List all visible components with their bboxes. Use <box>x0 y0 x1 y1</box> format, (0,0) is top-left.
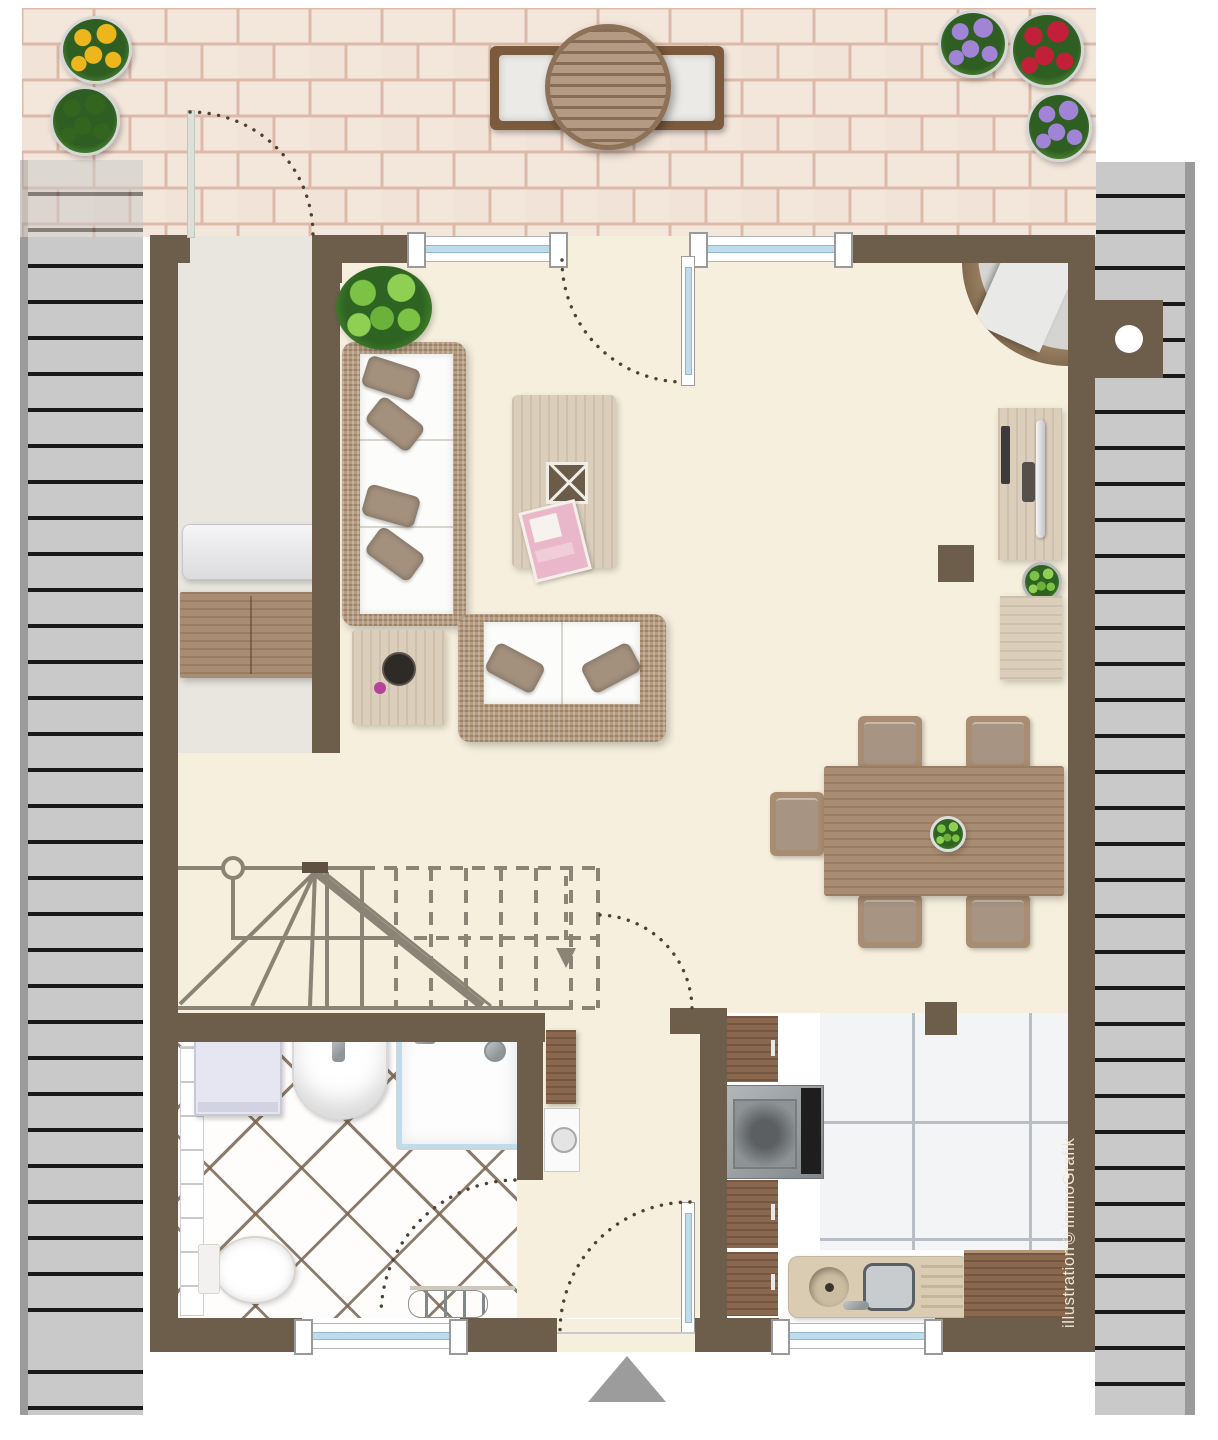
window-jamb <box>549 232 568 268</box>
washing-machine-panel <box>198 1102 278 1112</box>
flower-pot-shrub <box>50 86 120 156</box>
kitchen-cabinet <box>724 1252 778 1316</box>
wall-bottom <box>460 1318 557 1352</box>
bathroom-window <box>302 1323 460 1349</box>
desk-cabinet <box>1000 596 1062 680</box>
magazine-cover <box>529 513 562 543</box>
chimney-flue <box>1115 325 1143 353</box>
window-jamb <box>924 1319 943 1355</box>
shower-glass <box>398 1144 518 1148</box>
dining-chair <box>858 716 922 770</box>
window-jamb <box>834 232 853 268</box>
wall-pillar <box>312 235 342 283</box>
coffee-table <box>512 395 616 568</box>
wall-left <box>150 235 178 1352</box>
terrace-window-left <box>415 236 560 262</box>
kitchen-cabinet <box>724 1016 778 1082</box>
monitor-stand <box>1022 462 1035 502</box>
terrace-window-right <box>697 236 845 262</box>
window-jamb <box>407 232 426 268</box>
window-glass <box>782 1332 932 1340</box>
roof-overhang-left <box>20 237 143 1415</box>
wall-post <box>938 545 974 582</box>
window-glass <box>305 1332 457 1340</box>
kitchen-pillar <box>925 1002 957 1035</box>
roof-overhang-left-veiled <box>20 160 143 237</box>
window-glass <box>418 245 557 253</box>
kitchen-sink <box>788 1256 970 1318</box>
stove-oven <box>733 1099 797 1169</box>
wall-bottom <box>150 1318 302 1352</box>
sideboard <box>180 592 320 678</box>
terrace-door-leaf <box>681 256 695 386</box>
hall-appliance <box>544 1108 580 1172</box>
monitor <box>1036 420 1045 538</box>
kitchen-faucet <box>843 1301 869 1310</box>
wall-bathroom-top <box>178 1013 545 1042</box>
shower-glass <box>398 1030 402 1148</box>
keyboard <box>1001 426 1010 484</box>
floorplan: illustration©immoGrafik <box>0 0 1218 1440</box>
wall-top <box>845 235 1095 263</box>
appliance-door <box>551 1127 577 1153</box>
flower-pot-sunflower <box>60 16 132 84</box>
window-jamb <box>449 1319 468 1355</box>
storage-chest <box>182 524 322 580</box>
shower-head <box>484 1040 506 1062</box>
wall-bathroom-right <box>517 1042 543 1180</box>
bathroom-door-opening <box>517 1180 543 1318</box>
entry-patio-door-opening <box>190 236 312 263</box>
kitchen-window <box>779 1323 935 1349</box>
towel-radiator <box>408 1290 488 1318</box>
tall-cupboard <box>546 1030 576 1104</box>
front-door-opening <box>557 1319 695 1352</box>
window-glass <box>700 245 842 253</box>
centerpiece-plant <box>930 816 966 852</box>
dining-chair <box>966 716 1030 770</box>
cabinet-handle <box>771 1040 775 1056</box>
entrance-arrow <box>588 1356 666 1402</box>
kitchen-counter-wood <box>964 1250 1068 1321</box>
flower-pot-red <box>1010 12 1084 88</box>
desk <box>998 408 1062 560</box>
magazine-band <box>535 542 575 563</box>
decor-flower <box>374 682 386 694</box>
sink-drainer <box>921 1265 963 1309</box>
flower-pot-purple-1 <box>938 10 1008 78</box>
dining-table <box>824 766 1064 896</box>
bathroom-sink <box>292 1030 388 1120</box>
patio-table <box>545 24 671 150</box>
stove-cooktop <box>801 1088 821 1174</box>
shower <box>396 1028 520 1150</box>
credit-text: illustration©immoGrafik <box>1060 1118 1088 1328</box>
terrace-door-opening <box>560 236 697 263</box>
toilet <box>214 1236 296 1304</box>
flower-pot-purple-2 <box>1026 92 1092 162</box>
side-table <box>352 630 445 725</box>
decor-bowl <box>382 652 416 686</box>
cabinet-handle <box>771 1204 775 1220</box>
front-door-leaf <box>681 1202 695 1334</box>
window-jamb <box>771 1319 790 1355</box>
window-jamb <box>294 1319 313 1355</box>
dining-chair <box>966 894 1030 948</box>
toilet-tank <box>198 1244 220 1294</box>
stove <box>722 1085 824 1179</box>
wall-kitchen <box>700 1030 727 1320</box>
cabinet-handle <box>771 1274 775 1290</box>
storage-basket <box>546 462 588 504</box>
sideboard-seam <box>250 596 252 674</box>
sink-drain <box>825 1283 834 1292</box>
kitchen-floor <box>820 1013 1068 1253</box>
entry-room-floor <box>178 262 312 753</box>
entry-patio-door-leaf <box>187 110 195 238</box>
loveseat <box>458 614 666 742</box>
wall-entry <box>312 283 340 753</box>
wall-bottom <box>695 1318 779 1352</box>
sink-bowl-steel <box>863 1263 915 1311</box>
kitchen-cabinet <box>724 1180 778 1248</box>
sofa <box>342 342 466 626</box>
dining-chair <box>858 894 922 948</box>
washing-machine <box>194 1032 282 1116</box>
potted-plant <box>336 266 432 350</box>
dining-chair <box>770 792 824 856</box>
